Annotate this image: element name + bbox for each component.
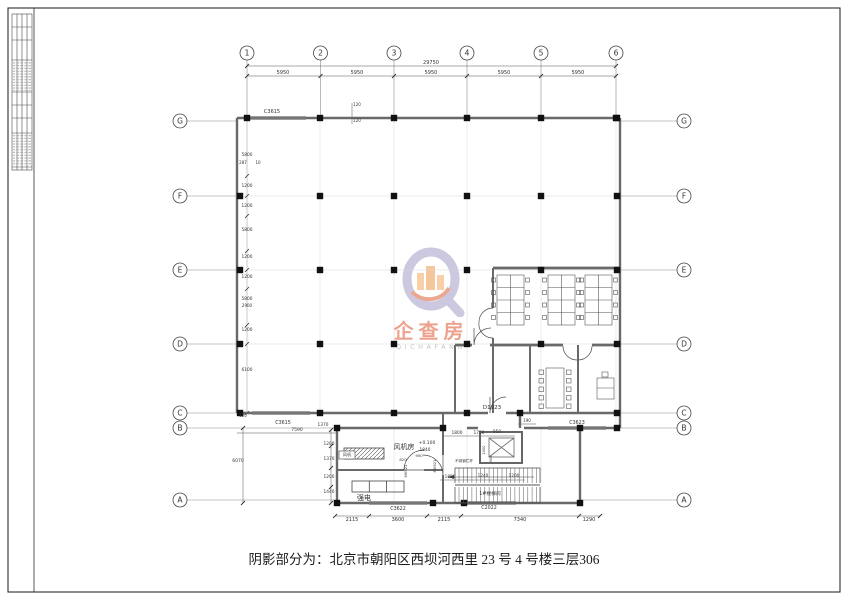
grid-bubble-right-A: A (677, 493, 691, 507)
grid-bubble-left-F: F (173, 189, 187, 203)
desk-bank (580, 275, 618, 325)
grid-bubble-label-left-C: C (177, 409, 182, 418)
electrical-panel (352, 481, 404, 492)
anno-dim-1000-elev: 1000 (482, 445, 486, 455)
anno-dim-1200-b: 1200 (242, 203, 253, 209)
grid-bubble-label-right-C: C (681, 409, 686, 418)
anno-dim-10: 10 (255, 160, 261, 165)
anno-dim-287: 287 (239, 160, 247, 165)
anno-dim-1240: 1240 (478, 473, 489, 478)
anno-dim-900-elev: 900 (489, 455, 493, 463)
anno-dim-120-b: 120 (353, 118, 361, 123)
grid-bubble-label-left-D: D (177, 340, 183, 349)
anno-dim-1200-d: 1200 (242, 274, 253, 280)
drawing-sheet: 企查房 QICHAFANG (0, 0, 848, 600)
anno-dim-2115-b: 2115 (438, 517, 451, 523)
anno-dim-1440: 1440 (324, 489, 335, 495)
anno-dim-1890: 1890 (445, 474, 456, 479)
anno-dim-bay-2: 5950 (351, 70, 364, 76)
anno-dim-5800-a: 5800 (242, 152, 253, 158)
anno-dim-2900: 2900 (242, 303, 253, 308)
grid-bubble-label-right-G: G (681, 117, 687, 126)
anno-dim-bay-4: 5950 (498, 70, 511, 76)
grid-bubble-right-F: F (677, 189, 691, 203)
grid-bubble-right-C: C (677, 406, 691, 420)
anno-dim-1370-b: 1370 (324, 456, 335, 462)
anno-door-d1923: D1923 (483, 405, 502, 411)
address-caption: 阴影部分为：北京市朝阳区西坝河西里 23 号 4 号楼三层306 (0, 548, 848, 568)
anno-dim-6100: 6100 (242, 367, 253, 373)
grid-bubble-label-right-B: B (681, 424, 686, 433)
anno-dim-5800-c: 5800 (242, 296, 253, 302)
anno-dim-820: 820 (399, 457, 407, 462)
anno-dim-1750: 1750 (474, 430, 485, 436)
grid-bubble-left-G: G (173, 114, 187, 128)
grid-bubble-left-C: C (173, 406, 187, 420)
grid-bubble-label-right-F: F (682, 192, 686, 201)
elevator-shaft (480, 432, 522, 463)
anno-dim-1800: 1800 (452, 430, 463, 436)
grid-bubble-label-right-A: A (681, 496, 687, 505)
grid-bubble-label-left-F: F (178, 192, 182, 201)
anno-door-m0921-a: M0921 (403, 464, 408, 478)
anno-label-fan-unit: 风机 (343, 451, 352, 458)
desk-bank (543, 275, 581, 325)
title-block-strip (12, 14, 32, 170)
grid-bubble-label-col-3: 3 (392, 49, 397, 58)
anno-dim-6070: 6070 (232, 458, 244, 464)
anno-dim-bay-3: 5950 (425, 70, 438, 76)
anno-win-c2022: C2022 (481, 505, 497, 511)
anno-win-c3622: C3622 (390, 506, 406, 512)
anno-dim-7590: 7590 (291, 427, 303, 433)
anno-dim-120-c: 120 (239, 413, 247, 418)
grid-bubble-right-D: D (677, 337, 691, 351)
anno-dim-950: 950 (493, 429, 501, 435)
grid-bubble-label-right-E: E (682, 266, 687, 275)
grid-bubble-label-right-D: D (681, 340, 687, 349)
grid-bubble-label-col-6: 6 (614, 49, 619, 58)
anno-door-m0921-b: M0921 (432, 459, 437, 473)
staircase (448, 468, 541, 503)
anno-dim-2115-a: 2115 (346, 517, 359, 523)
anno-win-c3615-c: C3615 (275, 420, 291, 426)
grid-bubble-col-2: 2 (314, 46, 328, 60)
anno-dim-1370-top: 1370 (318, 422, 329, 428)
grid-bubble-left-D: D (173, 337, 187, 351)
windows (248, 117, 606, 505)
anno-dim-1200-a: 1200 (242, 183, 253, 189)
grid-bubble-label-col-1: 1 (245, 49, 250, 58)
furniture (492, 275, 618, 409)
anno-dim-190: 190 (523, 418, 531, 423)
grid-bubble-left-A: A (173, 493, 187, 507)
anno-label-handrail: 不锈钢栏杆 (455, 458, 473, 463)
anno-dim-1200-f: 1200 (324, 441, 335, 447)
grid-bubble-col-1: 1 (240, 46, 254, 60)
anno-dim-1200-g: 1200 (324, 474, 335, 480)
anno-dim-5800-b: 5800 (242, 227, 253, 233)
grid-bubble-col-3: 3 (387, 46, 401, 60)
grid-bubble-label-left-E: E (178, 266, 183, 275)
anno-win-c3615-top: C3615 (264, 109, 280, 115)
anno-dim-1200-c: 1200 (242, 254, 253, 260)
anno-dim-900: 900 (415, 453, 423, 458)
anno-room-stair: 1#楼梯间 (479, 490, 501, 497)
grid-bubble-right-B: B (677, 421, 691, 435)
anno-dim-1290: 1290 (583, 517, 596, 523)
grid-bubble-right-G: G (677, 114, 691, 128)
anno-dim-bay-1: 5950 (277, 70, 290, 76)
anno-elev-0100: +0.100 (419, 440, 436, 446)
anno-dim-1200-e: 1200 (242, 327, 253, 333)
grid-bubble-label-left-A: A (177, 496, 183, 505)
anno-dim-bay-5: 5950 (572, 70, 585, 76)
grid-bubble-left-B: B (173, 421, 187, 435)
grid-bubble-right-E: E (677, 263, 691, 277)
grid-bubble-col-6: 6 (609, 46, 623, 60)
floor-plan: 123456GFEDCBAGFEDCBA 2975059505950595059… (0, 0, 848, 600)
anno-dim-120-a: 120 (353, 102, 361, 107)
grid-bubble-label-left-G: G (177, 117, 183, 126)
grid-bubble-label-col-2: 2 (318, 49, 323, 58)
grid-bubble-label-col-5: 5 (539, 49, 544, 58)
grid-bubble-col-5: 5 (534, 46, 548, 60)
anno-dim-total-top: 29750 (423, 60, 439, 66)
grid-leaders (187, 60, 677, 500)
anno-dim-3600: 3600 (392, 517, 405, 523)
grid-bubble-label-col-4: 4 (465, 49, 470, 58)
anno-dim-7340: 7340 (514, 517, 527, 523)
desk-bank (492, 275, 530, 325)
grid-bubble-left-E: E (173, 263, 187, 277)
anno-room-power: 强电 (357, 493, 371, 502)
anno-win-c3623: C3623 (569, 420, 585, 426)
anno-dim-1200-h: 1200 (509, 473, 520, 478)
anno-room-fan: 风机房 (394, 442, 415, 451)
grid-bubble-col-4: 4 (460, 46, 474, 60)
grid-bubble-label-left-B: B (177, 424, 182, 433)
